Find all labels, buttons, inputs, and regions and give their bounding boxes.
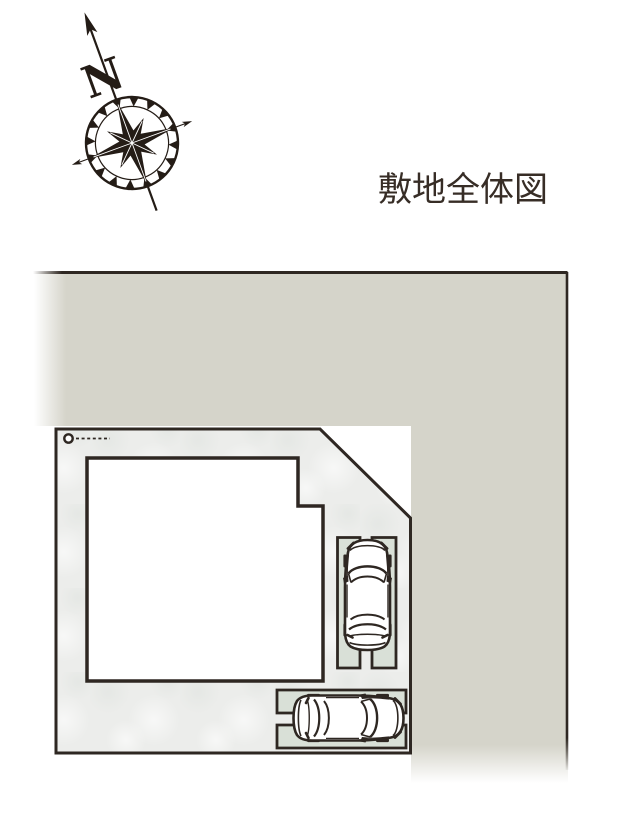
site-plan-page: 敷地全体図 xyxy=(0,0,619,825)
car-top-icon-vertical xyxy=(343,540,392,650)
road-area-right xyxy=(411,424,568,783)
compass-north-label: N xyxy=(76,48,131,110)
compass-rose-icon: N xyxy=(24,0,216,233)
road-area-top xyxy=(34,272,568,426)
site-plan xyxy=(33,272,568,783)
site-plan-figure: N xyxy=(0,0,619,825)
building-footprint xyxy=(87,458,323,681)
car-top-icon-horizontal xyxy=(294,694,404,743)
